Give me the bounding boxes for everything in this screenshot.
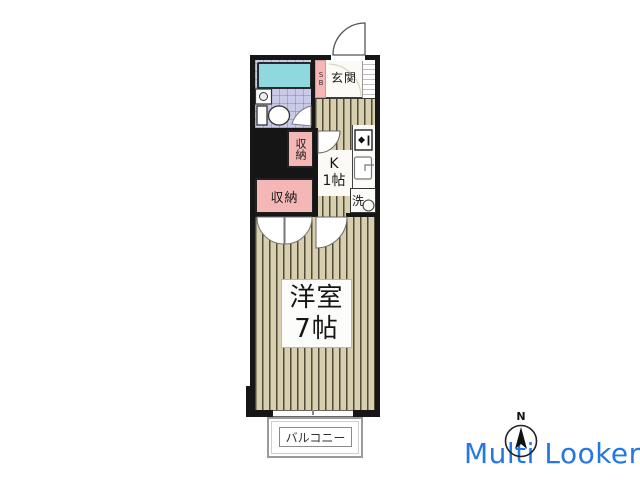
western-room-label: 洋室 7帖 <box>281 279 352 348</box>
compass-north-label: N <box>516 410 525 423</box>
entry-door-arc-icon <box>333 23 365 55</box>
bathtub-icon <box>257 62 312 89</box>
entrance-label: 玄関 <box>324 69 364 85</box>
floorplan-canvas: SB 玄関 収納 収納 洗 K 1帖 洋室 7帖 バルコニー <box>0 0 640 480</box>
kitchen-label-line1: K <box>329 156 338 173</box>
washing-machine-label: 洗 <box>352 192 368 208</box>
watermark-text: Multi Looker <box>464 437 640 470</box>
wall-segment <box>311 60 315 128</box>
closet-large: 収納 <box>255 178 314 214</box>
window-center-tick <box>312 410 314 415</box>
wall-segment <box>346 213 375 217</box>
balcony-label: バルコニー <box>279 427 352 447</box>
western-room-label-line2: 7帖 <box>294 314 339 345</box>
western-room-label-line1: 洋室 <box>289 283 343 314</box>
kitchen-label: K 1帖 <box>316 153 352 193</box>
kitchen-label-line2: 1帖 <box>323 173 346 190</box>
wall-segment <box>246 410 273 417</box>
wall-segment <box>255 213 316 217</box>
closet-small: 収納 <box>287 130 314 168</box>
kitchen-counter <box>352 125 375 188</box>
wall-segment <box>353 410 380 417</box>
